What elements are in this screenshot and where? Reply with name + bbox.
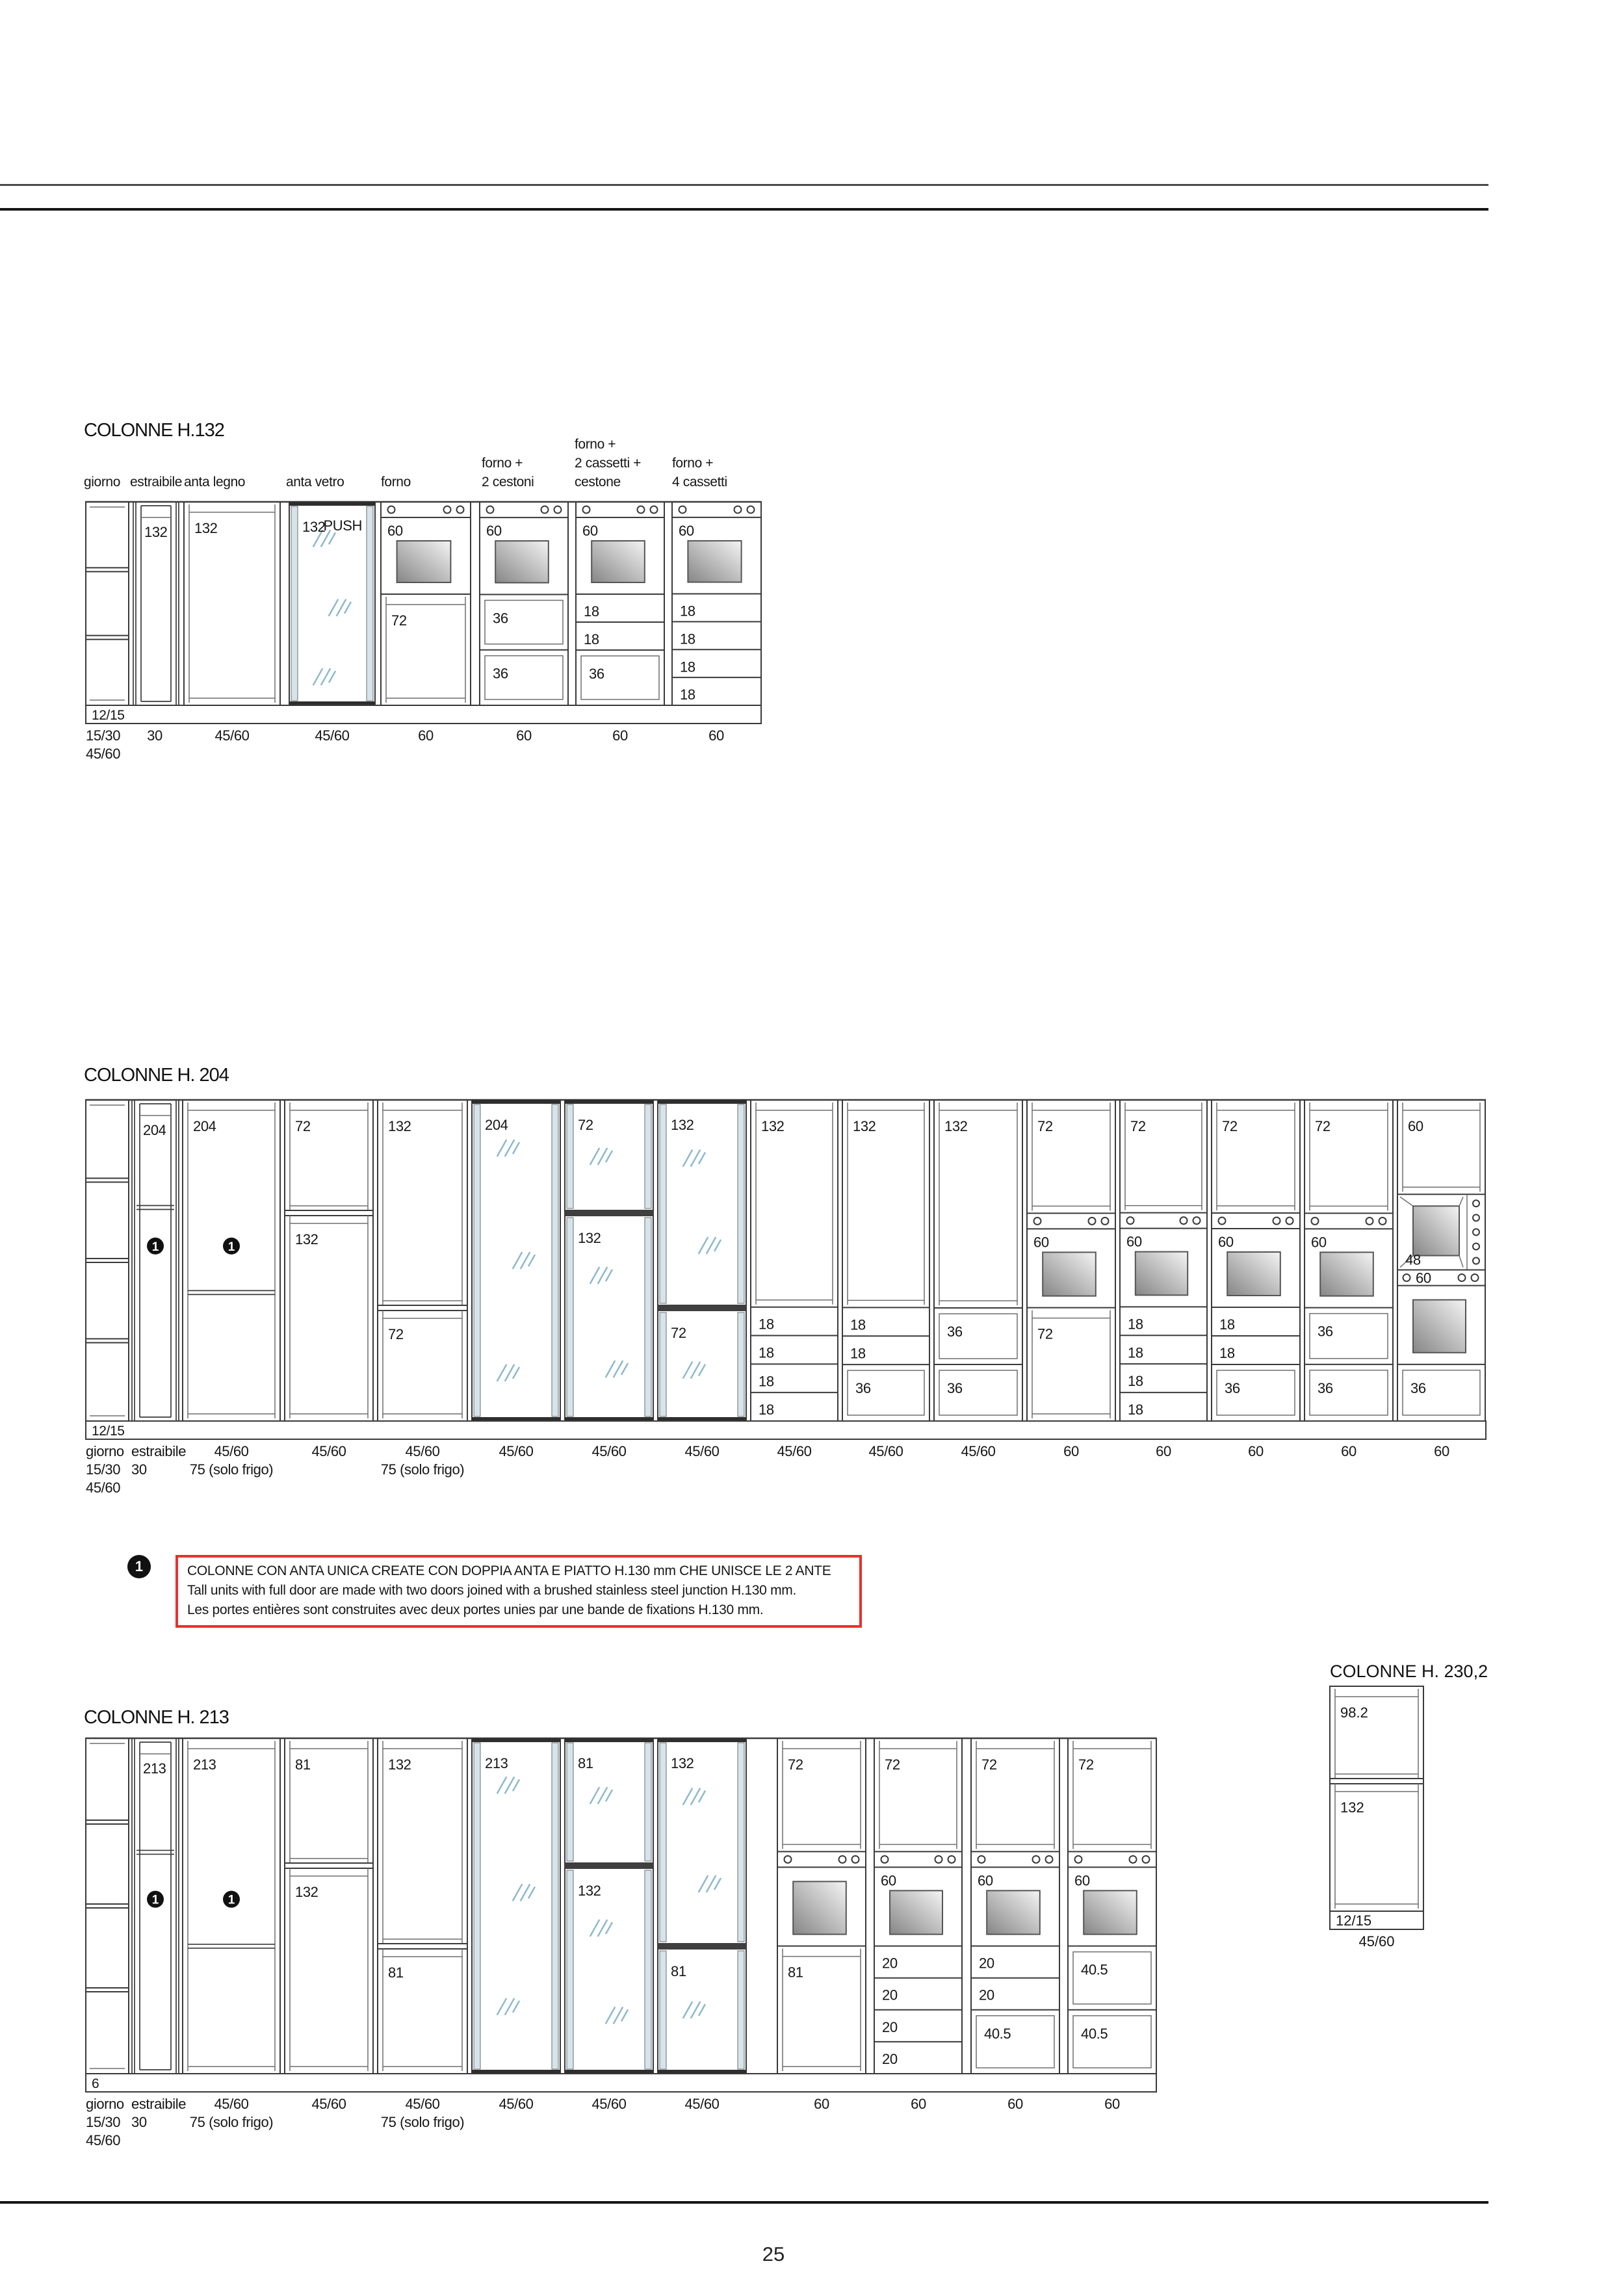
dim-label: 45/60 [86,1480,120,1496]
dim-label: 72 [1037,1118,1053,1134]
dim-label: 60 [1434,1443,1449,1459]
dim-label: 20 [882,1955,898,1972]
dim-label: 75 (solo frigo) [381,1461,465,1478]
dim-label: 18 [759,1345,774,1361]
dim-label: 132 [1340,1799,1364,1816]
dim-label: 72 [1078,1756,1094,1773]
h213-unit-5: 13281 [378,1738,467,2074]
h204-unit-13: 726018181818 [1120,1100,1207,1421]
dim-label: 132 [194,520,218,536]
dim-label: 45/60 [311,1443,346,1459]
dim-label: 18 [1128,1316,1143,1332]
dim-label: 45/60 [684,2096,719,2112]
dim-label: 81 [388,1964,404,1981]
dim-label: 1 [152,1894,159,1907]
dim-label: 45/60 [214,1443,248,1459]
oven-screen [987,1890,1040,1934]
dim-label: giorno [86,2096,124,2112]
dim-label: forno + [672,456,713,471]
dim-label: 45/60 [405,2096,439,2112]
dim-label: 40.5 [1081,2026,1108,2042]
dim-label: 72 [1130,1118,1146,1134]
dim-label: 72 [1037,1326,1053,1342]
dim-label: 45/60 [315,727,349,744]
dim-label: 60 [387,523,403,539]
dim-label: 6 [92,2076,99,2091]
dim-label: 72 [295,1118,311,1134]
dim-label: 15/30 [86,1461,120,1478]
dim-label: 18 [680,686,695,703]
dim-label: 1 [228,1894,235,1907]
dim-label: 40.5 [984,2026,1011,2042]
dim-label: 48 [1405,1252,1421,1268]
dim-label: 1 [228,1240,235,1254]
dim-label: 75 (solo frigo) [190,2114,274,2130]
dim-label: 20 [979,1955,994,1972]
dim-label: 72 [1222,1118,1238,1134]
dim-label: 45/60 [86,2132,120,2148]
dim-label: 36 [1318,1324,1333,1340]
dim-label: 36 [947,1324,963,1340]
dim-label: 45/60 [777,1443,811,1459]
h213-unit-2: 2131 [132,1738,179,2074]
oven-screen [495,541,549,582]
dim-label: 18 [759,1402,774,1418]
h204-unit-12: 726072 [1027,1100,1115,1421]
dim-label: 60 [881,1872,896,1888]
dim-label: estraibile [131,2096,186,2112]
dim-label: 18 [850,1345,866,1361]
dim-label: 15/30 [86,727,120,744]
h213-unit-9: 7281 [777,1738,866,2074]
oven-screen [1043,1252,1096,1296]
h204-unit-5: 13272 [378,1100,467,1421]
h204-unit-1 [86,1100,129,1421]
dim-label: 75 (solo frigo) [381,2114,465,2130]
dim-label: 20 [882,2051,898,2067]
dim-label: 45/60 [311,2096,346,2112]
dim-label: 204 [143,1122,166,1138]
oven-screen [890,1890,942,1934]
dim-label: 60 [1104,2096,1120,2112]
niche-screen [1413,1206,1459,1255]
dim-label: anta legno [184,475,245,489]
dim-label: 18 [1219,1316,1235,1333]
dim-label: 18 [850,1316,866,1333]
dim-label: 18 [680,603,695,620]
dim-label: 18 [584,603,599,620]
dim-label: 30 [131,2114,147,2130]
h204-unit-4: 72132 [285,1100,373,1421]
dim-label: 60 [911,2096,926,2112]
h132-unit-7: 60181836 [576,502,664,705]
h204-unit-3: 2041 [183,1100,280,1421]
dim-label: 60 [1311,1234,1327,1250]
dim-label: 45/60 [1358,1933,1394,1950]
dim-label: 36 [493,666,508,682]
dim-label: 30 [147,727,162,744]
dim-label: 36 [493,610,508,626]
dim-label: 72 [671,1325,686,1341]
dim-label: estraibile [130,475,182,489]
dim-label: 45/60 [214,2096,248,2112]
dim-label: 60 [1416,1270,1431,1286]
dim-label: 132 [388,1118,411,1134]
dim-label: 18 [584,631,599,647]
dim-label: 45/60 [499,1443,533,1459]
dim-label: giorno [84,475,120,489]
dim-label: 60 [516,727,532,744]
dim-label: 60 [814,2096,829,2112]
dim-label: 60 [1074,1872,1090,1888]
dim-label: 36 [1318,1380,1333,1396]
h213-unit-3: 2131 [183,1738,280,2074]
dim-label: 132 [302,519,326,535]
h204-unit-2: 2041 [132,1100,179,1421]
h213-unit-7: 81132 [565,1738,653,2074]
dim-label: 60 [1408,1118,1423,1134]
dim-label: 72 [981,1756,997,1773]
dim-label: PUSH [323,517,362,534]
dim-label: 60 [1033,1234,1049,1250]
dim-label: 81 [578,1755,593,1771]
dim-label: 18 [680,631,695,647]
dim-label: 132 [578,1230,601,1246]
dim-label: cestone [575,475,621,489]
h132-unit-4: 132PUSH [289,502,375,705]
dim-label: 75 (solo frigo) [190,1461,274,1478]
dim-label: 45/60 [499,2096,533,2112]
dim-label: 60 [1341,1443,1357,1459]
dim-label: 30 [131,1461,147,1478]
dim-label: 45/60 [961,1443,995,1459]
h204-unit-14: 7260181836 [1212,1100,1300,1421]
dim-label: 45/60 [214,727,249,744]
dim-label: 60 [486,523,502,539]
h213-unit-1 [86,1738,129,2074]
dim-label: 60 [708,727,724,744]
dim-label: 18 [680,659,695,675]
h132-unit-8: 6018181818 [672,502,761,705]
dim-label: 132 [671,1755,694,1771]
dim-label: 2 cestoni [482,475,534,489]
h204-unit-10: 132181836 [842,1100,929,1421]
dim-label: 81 [671,1963,686,1979]
dim-label: 72 [885,1756,900,1773]
dim-label: 132 [578,1883,601,1899]
oven-screen [1227,1252,1280,1296]
dim-label: 60 [1126,1234,1142,1250]
dim-label: 132 [761,1118,785,1134]
technical-drawing: 132132132PUSH607260363660181836601818181… [0,0,1623,2296]
dim-label: 1 [152,1240,159,1254]
dim-label: anta vetro [286,475,344,489]
h213-unit-12: 726040.540.5 [1068,1738,1156,2074]
dim-label: 60 [1063,1443,1079,1459]
h213-unit-6: 213 [472,1738,560,2074]
dim-label: 132 [388,1756,411,1773]
dim-label: 81 [295,1756,311,1773]
oven-screen [793,1881,846,1934]
dim-label: 36 [589,666,604,682]
h132-unit-5: 6072 [381,502,471,705]
h132-unit-2: 132 [133,502,179,705]
dim-label: 20 [882,1987,898,2003]
dim-label: 72 [1315,1118,1331,1134]
dim-label: 20 [979,1987,994,2003]
dim-label: 132 [944,1118,968,1134]
dim-label: 60 [582,523,598,539]
dim-label: 45/60 [405,1443,439,1459]
dim-label: 72 [788,1756,803,1773]
dim-label: 18 [759,1373,774,1389]
dim-label: 20 [882,2019,898,2035]
dim-label: 72 [388,1326,404,1342]
dim-label: 18 [759,1316,774,1333]
dim-label: 36 [1225,1380,1240,1396]
dim-label: 213 [143,1760,166,1777]
h204-unit-15: 72603636 [1305,1100,1393,1421]
dim-label: 204 [485,1117,508,1133]
dim-label: 36 [947,1380,963,1396]
dim-label: 45/60 [684,1443,719,1459]
dim-label: 40.5 [1081,1962,1108,1978]
dim-label: 15/30 [86,2114,120,2130]
dim-label: 60 [1007,2096,1023,2112]
h132-unit-3: 132 [184,502,280,705]
h132-unit-6: 603636 [480,502,568,705]
dim-label: 132 [295,1884,318,1900]
h204-unit-6: 204 [472,1100,560,1421]
dim-label: 213 [485,1755,508,1771]
oven-screen [1084,1890,1137,1934]
dim-label: 213 [193,1756,216,1773]
dim-label: 72 [391,612,407,629]
oven-screen [1136,1252,1188,1296]
dim-label: forno + [482,456,523,471]
dim-label: 60 [1218,1234,1234,1250]
dim-label: 45/60 [591,2096,626,2112]
dim-label: forno + [575,437,616,452]
dim-label: 18 [1128,1344,1143,1361]
h204-unit-11: 1323636 [934,1100,1022,1421]
oven-screen [1320,1252,1373,1296]
dim-label: 18 [1128,1402,1143,1418]
h204-unit-8: 13272 [658,1100,746,1421]
dim-label: 60 [978,1872,993,1888]
dim-label: 204 [193,1118,216,1134]
dim-label: 72 [578,1117,593,1133]
dim-label: 18 [1219,1345,1235,1361]
dim-label: 45/60 [86,746,120,762]
dim-label: estraibile [131,1443,186,1459]
dim-label: 60 [612,727,628,744]
h204-unit-9: 13218181818 [751,1100,838,1421]
dim-label: 132 [853,1118,876,1134]
dim-label: 60 [679,523,694,539]
h213-unit-8: 13281 [658,1738,746,2074]
dim-label: 60 [1248,1443,1264,1459]
oven-screen [688,541,741,582]
h213-unit-4: 81132 [285,1738,373,2074]
dim-label: 18 [1128,1373,1143,1389]
dim-label: 2 cassetti + [575,456,641,471]
dim-label: 12/15 [92,1424,125,1439]
dim-label: 132 [144,524,168,540]
dim-label: 4 cassetti [672,475,727,489]
catalog-page: COLONNE H.132 COLONNE H. 204 COLONNE H. … [0,0,1623,2296]
dim-label: 45/60 [591,1443,626,1459]
section-h2302: 98.213212/1545/60 [1330,1686,1423,1950]
dim-label: 36 [855,1380,871,1396]
dim-label: 12/15 [1336,1912,1371,1929]
h204-unit-7: 72132 [565,1100,653,1421]
section-h213: 2131213181132132812138113213281728172602… [86,1738,1156,2148]
dim-label: giorno [86,1443,124,1459]
dim-label: 45/60 [868,1443,903,1459]
dim-label: 132 [671,1117,694,1133]
section-h204: 2041204172132132722047213213272132181818… [86,1100,1486,1496]
oven-screen [591,541,645,582]
h213-unit-10: 726020202020 [874,1738,962,2074]
oven-screen [1413,1300,1466,1353]
dim-label: 12/15 [92,708,125,723]
h213-unit-11: 7260202040.5 [971,1738,1059,2074]
dim-label: forno [381,475,411,489]
h204-unit-16: 60486036 [1397,1100,1485,1421]
oven-screen [397,541,451,582]
dim-label: 36 [1410,1380,1426,1396]
dim-label: 132 [295,1231,318,1247]
dim-label: 60 [418,727,434,744]
section-h132: 132132132PUSH607260363660181836601818181… [84,437,761,762]
dim-label: 60 [1156,1443,1171,1459]
h2302-unit-1: 98.2132 [1330,1686,1423,1911]
h132-unit-1 [86,502,129,705]
dim-label: 81 [788,1964,803,1981]
dim-label: 98.2 [1340,1704,1368,1721]
